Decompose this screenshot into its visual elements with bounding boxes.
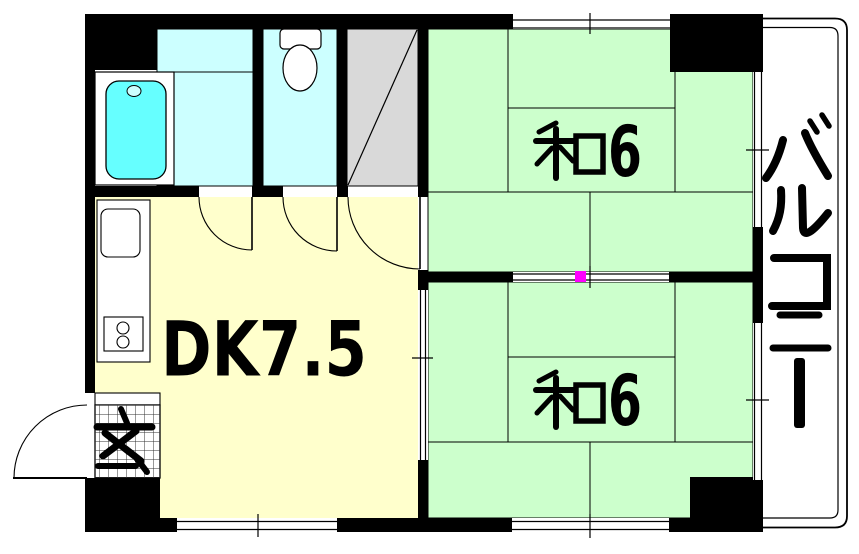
bathtub-faucet-icon	[127, 86, 141, 97]
wall-toilet-closet	[337, 29, 347, 197]
washitsu-lower-size-text: 6	[608, 360, 642, 442]
wall-bath-toilet	[253, 29, 263, 197]
wall-left	[85, 14, 95, 393]
wall-closet-washitsu	[418, 14, 428, 197]
wall-bottom	[155, 518, 177, 532]
wall-water-bottom	[252, 186, 283, 197]
window-gap	[513, 14, 670, 29]
wall-bottom	[669, 518, 763, 532]
wall-water-bottom	[337, 186, 348, 197]
dk-label-text: DK7.5	[161, 305, 367, 394]
wall-corner-topleft	[85, 14, 157, 70]
kitchen-sink-icon	[101, 209, 140, 257]
washitsu-upper-size-text: 6	[608, 111, 642, 193]
wall-dk-washitsu-mid	[418, 270, 428, 290]
katakana-chouon-glyph	[794, 358, 805, 428]
wall-room-divider-right	[669, 272, 763, 282]
wall-room-divider-left	[428, 272, 513, 282]
wall-water-bottom	[95, 186, 199, 197]
floor-plan-page: 和6 和6 DK7.5 玄 バルコニー	[0, 0, 859, 554]
wall-corner-bottomleft	[85, 478, 160, 532]
fusuma-gap	[418, 290, 428, 460]
wall-right-mid	[753, 227, 763, 323]
magenta-marker	[575, 271, 586, 282]
toilet-bowl-icon	[283, 45, 317, 91]
genkan-threshold	[95, 393, 160, 405]
wall-bottom	[337, 518, 512, 532]
wall-corner-topright	[670, 14, 763, 72]
floor-plan-svg: 6 6 DK7.5	[0, 0, 859, 554]
